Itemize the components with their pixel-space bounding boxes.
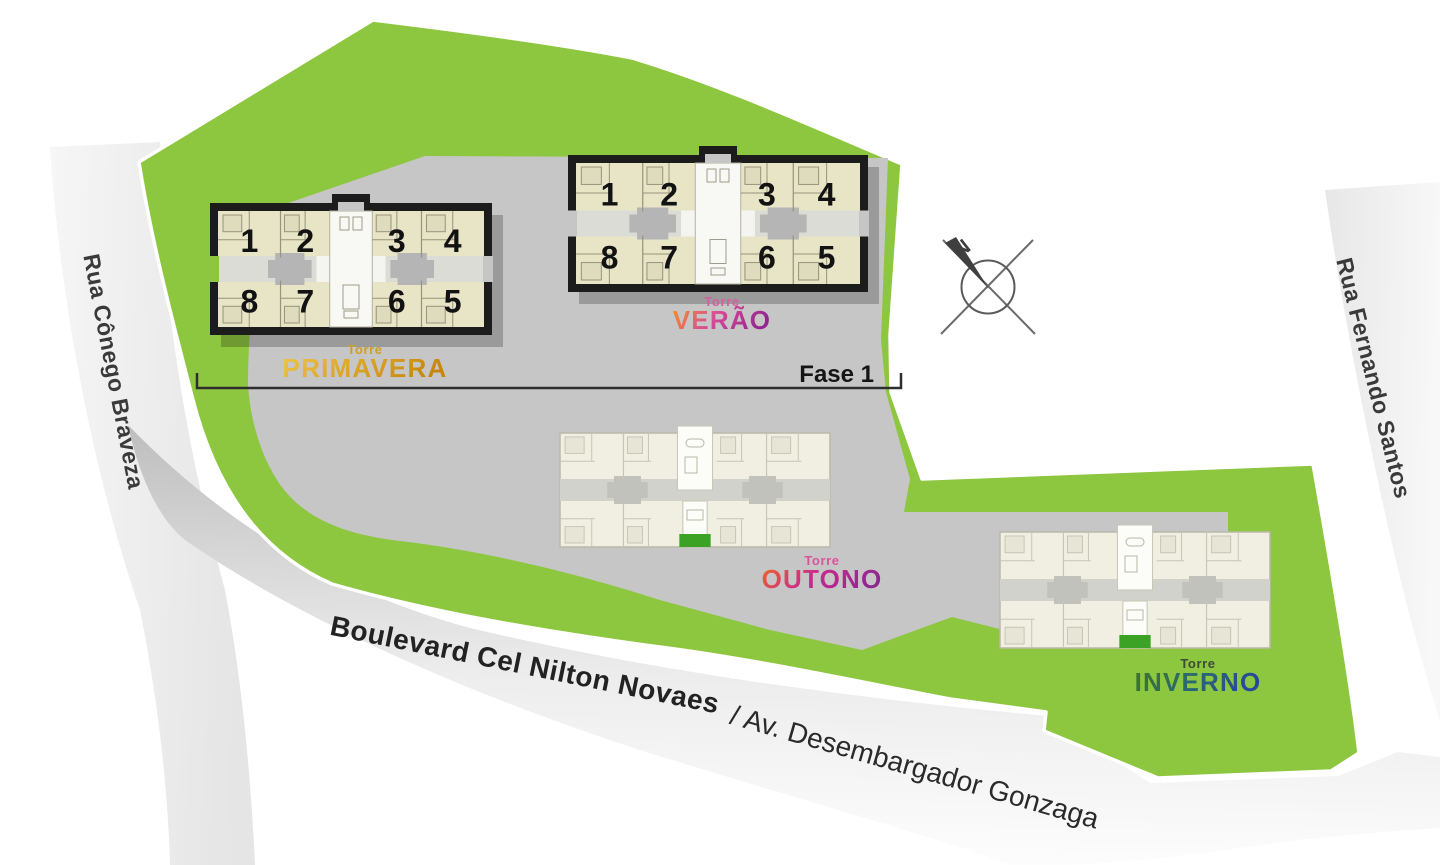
unit-number: 7 xyxy=(296,283,314,319)
site-plan-page: Fase 1 1234876512348765 N Torre PRIMAVER… xyxy=(0,0,1440,865)
tower-name-outono: OUTONO xyxy=(762,564,883,594)
unit-number: 6 xyxy=(758,239,776,275)
compass-axis-ne-sw xyxy=(941,240,1033,334)
unit-number: 5 xyxy=(818,239,836,275)
unit-number: 4 xyxy=(818,176,836,212)
unit-number: 2 xyxy=(296,223,314,259)
unit-number: 4 xyxy=(444,223,462,259)
tower-name-verao: VERÃO xyxy=(673,305,771,335)
building-primavera[interactable]: 12348765 xyxy=(209,194,503,347)
unit-number: 1 xyxy=(601,176,619,212)
unit-number: 3 xyxy=(758,176,776,212)
unit-number: 5 xyxy=(444,283,462,319)
compass-rose: N xyxy=(941,235,1035,334)
phase1-label: Fase 1 xyxy=(799,361,874,388)
tower-name-inverno: INVERNO xyxy=(1135,667,1262,697)
unit-number: 2 xyxy=(660,176,678,212)
unit-number: 3 xyxy=(388,223,406,259)
building-inverno[interactable] xyxy=(1000,525,1270,648)
tower-name-primavera: PRIMAVERA xyxy=(283,353,448,383)
unit-number: 6 xyxy=(388,283,406,319)
unit-number: 7 xyxy=(660,239,678,275)
entrance-canopy xyxy=(679,534,710,547)
unit-number: 1 xyxy=(240,223,258,259)
entrance-canopy xyxy=(1119,635,1150,648)
unit-number: 8 xyxy=(601,239,619,275)
unit-number: 8 xyxy=(240,283,258,319)
building-outono[interactable] xyxy=(560,426,830,547)
site-plan-canvas: Fase 1 1234876512348765 N Torre PRIMAVER… xyxy=(0,0,1440,865)
building-verao[interactable]: 12348765 xyxy=(567,146,879,304)
